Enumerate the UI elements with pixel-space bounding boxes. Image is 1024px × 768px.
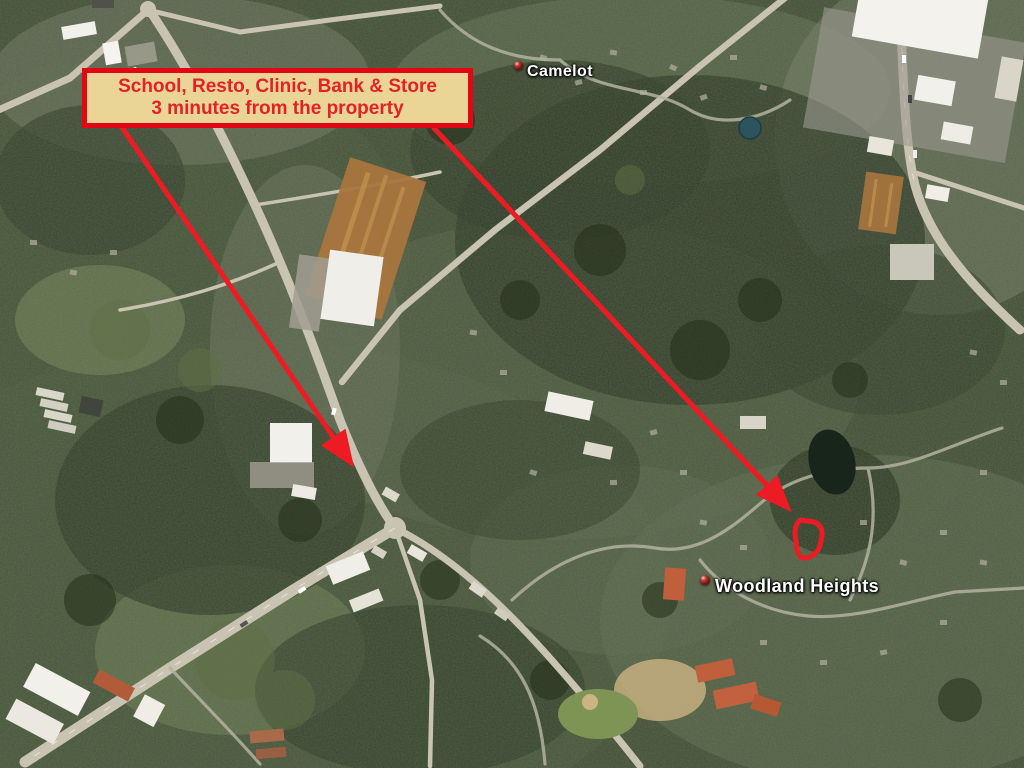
place-marker-icon	[514, 61, 523, 70]
callout-line2: 3 minutes from the property	[87, 98, 468, 120]
place-label-camelot: Camelot	[518, 63, 593, 81]
callout-box: School, Resto, Clinic, Bank & Store 3 mi…	[82, 68, 473, 128]
annotated-satellite-image: Camelot Woodland Heights School, Resto, …	[0, 0, 1024, 768]
place-marker-icon	[700, 575, 710, 585]
place-label-text: Woodland Heights	[715, 576, 879, 596]
callout-line1: School, Resto, Clinic, Bank & Store	[87, 76, 468, 98]
place-label-woodland-heights: Woodland Heights	[706, 576, 879, 597]
place-label-text: Camelot	[527, 63, 593, 80]
